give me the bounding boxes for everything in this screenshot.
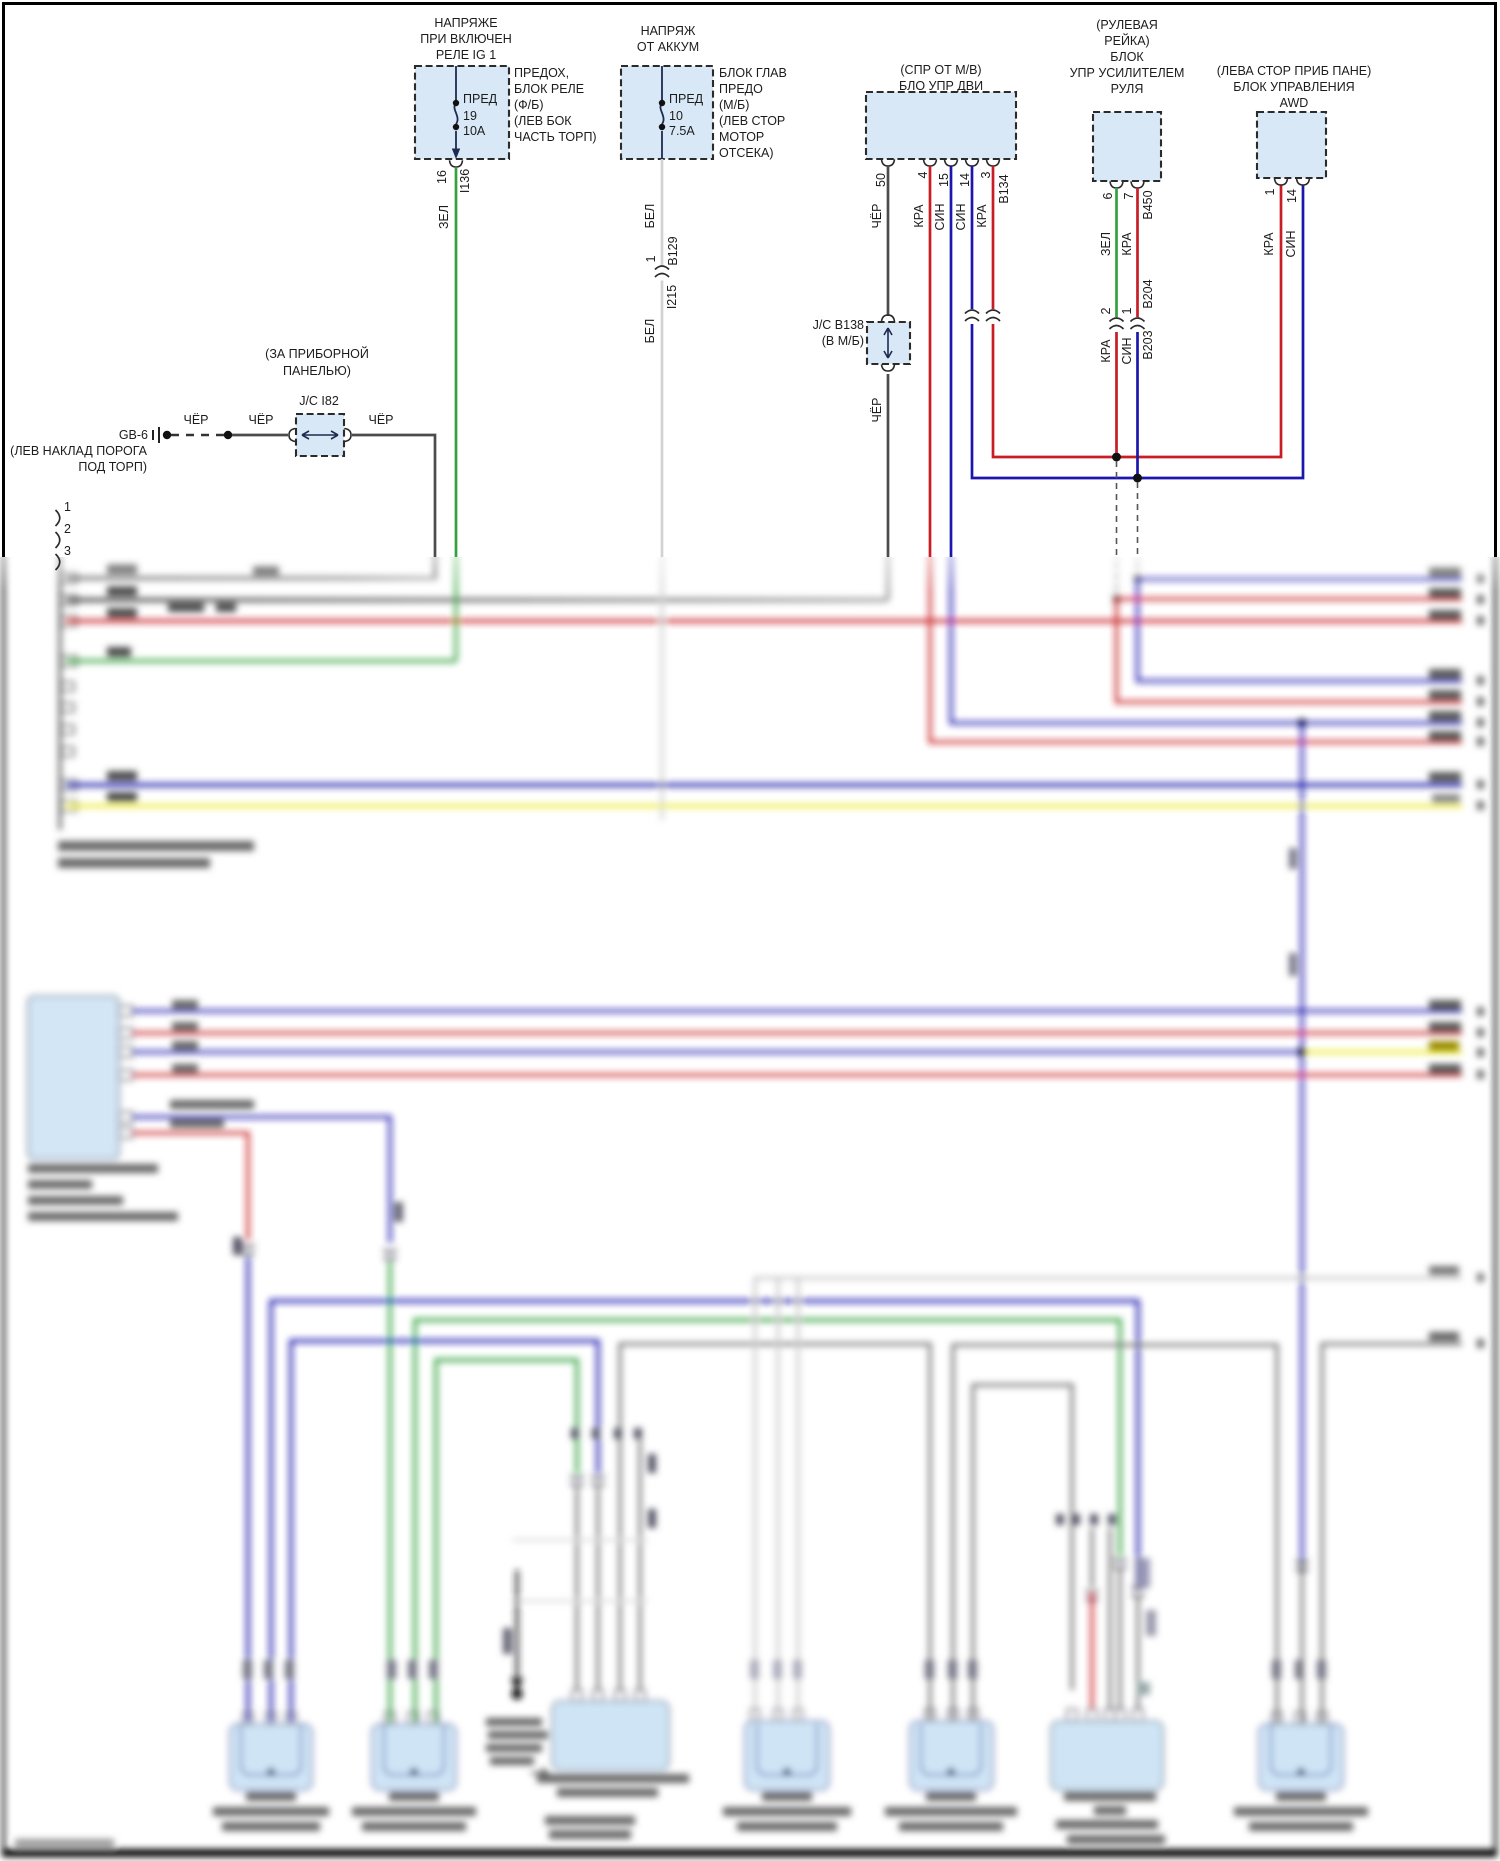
svg-text:6: 6 <box>1101 192 1115 199</box>
svg-text:БЛОК ГЛАВ: БЛОК ГЛАВ <box>719 66 787 80</box>
svg-text:СИН: СИН <box>1120 337 1134 364</box>
svg-text:J/C B138: J/C B138 <box>813 318 864 332</box>
svg-text:ПАНЕЛЬЮ): ПАНЕЛЬЮ) <box>283 364 351 378</box>
svg-text:ПРЕДОХ,: ПРЕДОХ, <box>514 66 569 80</box>
svg-text:БЕЛ: БЕЛ <box>643 204 657 229</box>
svg-text:ЧЁР: ЧЁР <box>183 413 208 427</box>
svg-text:B134: B134 <box>997 174 1011 203</box>
svg-text:AWD: AWD <box>1280 96 1309 110</box>
svg-text:2: 2 <box>1099 307 1113 314</box>
svg-text:1: 1 <box>644 255 658 262</box>
svg-text:1: 1 <box>64 500 71 514</box>
svg-text:ПРЕД: ПРЕД <box>463 92 498 106</box>
svg-text:(ЛЕВ НАКЛАД ПОРОГА: (ЛЕВ НАКЛАД ПОРОГА <box>10 444 147 458</box>
svg-text:ОТ АККУМ: ОТ АККУМ <box>637 40 699 54</box>
svg-text:4: 4 <box>916 171 930 178</box>
svg-text:7.5А: 7.5А <box>669 124 695 138</box>
svg-text:I136: I136 <box>458 169 472 193</box>
svg-text:КРА: КРА <box>975 204 989 228</box>
svg-text:GB-6: GB-6 <box>119 428 148 442</box>
svg-text:КРА: КРА <box>1099 339 1113 363</box>
svg-text:1: 1 <box>1263 188 1277 195</box>
svg-text:I215: I215 <box>665 285 679 309</box>
svg-text:7: 7 <box>1122 192 1136 199</box>
svg-text:ЧЁР: ЧЁР <box>870 203 884 228</box>
svg-text:(ЛЕВА СТОР ПРИБ ПАНЕ): (ЛЕВА СТОР ПРИБ ПАНЕ) <box>1217 64 1372 78</box>
svg-text:1: 1 <box>1120 307 1134 314</box>
svg-text:ЧЁР: ЧЁР <box>248 413 273 427</box>
svg-text:(ЛЕВ СТОР: (ЛЕВ СТОР <box>719 114 785 128</box>
svg-text:СИН: СИН <box>1284 230 1298 257</box>
svg-text:(ЗА ПРИБОРНОЙ: (ЗА ПРИБОРНОЙ <box>265 346 369 361</box>
svg-text:15: 15 <box>937 173 951 187</box>
svg-text:3: 3 <box>64 544 71 558</box>
svg-text:НАПРЯЖ: НАПРЯЖ <box>641 24 696 38</box>
svg-text:УПР УСИЛИТЕЛЕМ: УПР УСИЛИТЕЛЕМ <box>1070 66 1185 80</box>
svg-text:14: 14 <box>1285 189 1299 203</box>
svg-text:РЕЙКА): РЕЙКА) <box>1104 33 1149 48</box>
svg-text:3: 3 <box>979 171 993 178</box>
svg-text:B129: B129 <box>666 236 680 265</box>
svg-text:КРА: КРА <box>912 204 926 228</box>
svg-text:РЕЛЕ IG 1: РЕЛЕ IG 1 <box>436 48 496 62</box>
svg-text:ОТСЕКА): ОТСЕКА) <box>719 146 774 160</box>
svg-text:50: 50 <box>874 173 888 187</box>
svg-text:БЛОК РЕЛЕ: БЛОК РЕЛЕ <box>514 82 584 96</box>
svg-text:ЧЁР: ЧЁР <box>870 397 884 422</box>
svg-text:14: 14 <box>958 173 972 187</box>
svg-text:19: 19 <box>463 109 477 123</box>
svg-text:16: 16 <box>435 170 449 184</box>
svg-text:(Ф/Б): (Ф/Б) <box>514 98 544 112</box>
svg-text:НАПРЯЖЕ: НАПРЯЖЕ <box>434 16 497 30</box>
svg-text:КРА: КРА <box>1120 232 1134 256</box>
svg-text:ПРЕД: ПРЕД <box>669 92 704 106</box>
svg-text:МОТОР: МОТОР <box>719 130 764 144</box>
svg-text:БЛОК УПРАВЛЕНИЯ: БЛОК УПРАВЛЕНИЯ <box>1233 80 1354 94</box>
svg-text:ПРЕДО: ПРЕДО <box>719 82 763 96</box>
svg-text:ПОД ТОРП): ПОД ТОРП) <box>78 460 147 474</box>
svg-text:B203: B203 <box>1141 330 1155 359</box>
svg-text:РУЛЯ: РУЛЯ <box>1111 82 1144 96</box>
svg-text:B204: B204 <box>1141 279 1155 308</box>
svg-text:СИН: СИН <box>954 203 968 230</box>
svg-text:СИН: СИН <box>933 203 947 230</box>
svg-text:10: 10 <box>669 109 683 123</box>
svg-text:ПРИ ВКЛЮЧЕН: ПРИ ВКЛЮЧЕН <box>420 32 512 46</box>
svg-text:БЛОК: БЛОК <box>1110 50 1144 64</box>
svg-text:(СПР ОТ М/В): (СПР ОТ М/В) <box>900 63 981 77</box>
svg-text:(М/Б): (М/Б) <box>719 98 749 112</box>
svg-text:КРА: КРА <box>1262 232 1276 256</box>
svg-text:БЕЛ: БЕЛ <box>643 319 657 344</box>
svg-text:ЗЕЛ: ЗЕЛ <box>1099 232 1113 256</box>
svg-text:(ЛЕВ БОК: (ЛЕВ БОК <box>514 114 572 128</box>
svg-text:ЗЕЛ: ЗЕЛ <box>437 205 451 229</box>
svg-text:J/C I82: J/C I82 <box>299 394 339 408</box>
svg-text:ЧЁР: ЧЁР <box>368 413 393 427</box>
svg-text:ЧАСТЬ ТОРП): ЧАСТЬ ТОРП) <box>514 130 597 144</box>
svg-text:2: 2 <box>64 522 71 536</box>
svg-text:(В М/Б): (В М/Б) <box>822 334 864 348</box>
svg-text:БЛО УПР ДВИ: БЛО УПР ДВИ <box>899 79 983 93</box>
svg-text:B450: B450 <box>1141 190 1155 219</box>
svg-text:(РУЛЕВАЯ: (РУЛЕВАЯ <box>1096 18 1158 32</box>
svg-text:10А: 10А <box>463 124 486 138</box>
